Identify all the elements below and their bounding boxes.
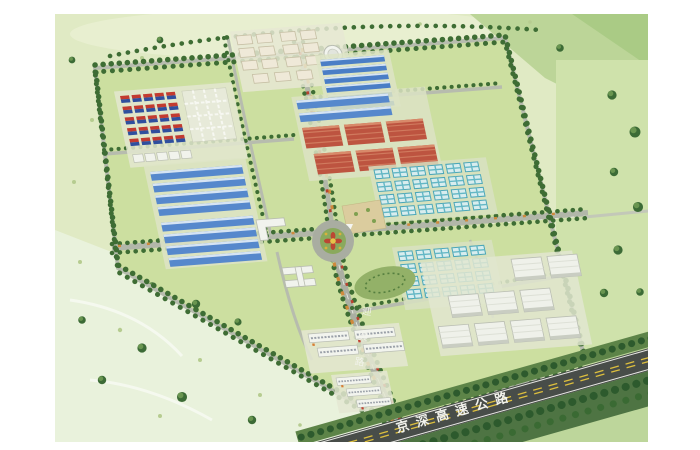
warehouse (511, 257, 546, 281)
container-unit (148, 115, 158, 123)
container-unit (138, 127, 148, 135)
container-unit (129, 138, 139, 146)
tree (78, 316, 86, 324)
container-unit (164, 136, 174, 144)
tree (234, 318, 241, 325)
greenhouse (470, 245, 486, 255)
workshop-unit (283, 44, 300, 54)
greenhouse (436, 203, 452, 213)
greenhouse (379, 194, 395, 204)
greenhouse (410, 166, 426, 176)
container-unit (170, 113, 180, 121)
tree (69, 57, 76, 64)
greenhouse (464, 162, 480, 172)
greenhouse (428, 165, 444, 175)
workshop-unit (157, 152, 169, 161)
container-unit (120, 95, 130, 103)
warehouse (448, 294, 483, 318)
greenhouse (397, 193, 413, 203)
district-container-yard (114, 82, 248, 167)
workshop-unit (256, 33, 273, 43)
tree (556, 44, 564, 52)
container-unit (152, 137, 162, 145)
tree (610, 168, 618, 176)
workshop-unit (259, 46, 276, 56)
workshop-unit (274, 72, 291, 82)
container-unit (166, 92, 176, 100)
warehouse (438, 324, 473, 348)
workshop-unit (133, 154, 145, 163)
workshop-unit (252, 73, 269, 83)
container-unit (161, 125, 171, 133)
greenhouse (434, 248, 450, 258)
tree (248, 416, 256, 424)
greenhouse (469, 187, 485, 197)
tree (98, 376, 106, 384)
greenhouse (406, 289, 422, 299)
greenhouse (452, 247, 468, 257)
district-warehouses (421, 250, 597, 356)
rendering-page: 京深高速公路 迎宾路 (0, 0, 700, 450)
container-unit (134, 105, 144, 113)
greenhouse (382, 207, 398, 217)
greenhouse (392, 168, 408, 178)
warehouse (547, 254, 582, 278)
tree (177, 392, 187, 402)
tree (607, 90, 616, 99)
red-roof-factory (386, 119, 427, 142)
container-unit (141, 137, 151, 145)
workshop-unit (261, 59, 278, 69)
red-roof-factory (302, 125, 343, 148)
red-roof-factory (314, 151, 355, 174)
tree (600, 289, 608, 297)
container-unit (159, 114, 169, 122)
greenhouse (433, 190, 449, 200)
district-greenhouses-east (368, 157, 498, 223)
tree (157, 37, 164, 44)
workshop-unit (296, 70, 313, 80)
masterplan-rendering: 京深高速公路 迎宾路 (0, 0, 700, 450)
tree (137, 343, 146, 352)
greenhouse (454, 201, 470, 211)
greenhouse (449, 176, 465, 186)
greenhouse (418, 204, 434, 214)
container-unit (143, 94, 153, 102)
greenhouse (416, 250, 432, 260)
greenhouse (398, 251, 414, 261)
greenhouse (431, 177, 447, 187)
greenhouse (451, 189, 467, 199)
workshop-unit (241, 60, 258, 70)
greenhouse (374, 169, 390, 179)
workshop-unit (285, 57, 302, 67)
container-unit (157, 103, 167, 111)
workshop-unit (180, 150, 192, 159)
red-roof-factory (344, 122, 385, 145)
roundabout (312, 220, 354, 262)
container-unit (150, 126, 160, 134)
workshop-unit (303, 43, 320, 53)
container-unit (131, 94, 141, 102)
workshop-unit (280, 31, 297, 41)
tree (633, 202, 643, 212)
tree (636, 288, 644, 296)
greenhouse (413, 179, 429, 189)
container-unit (145, 104, 155, 112)
greenhouse (446, 163, 462, 173)
container-unit (154, 93, 164, 101)
warehouse (484, 291, 519, 315)
tree (630, 127, 641, 138)
greenhouse (377, 182, 393, 192)
container-unit (127, 128, 137, 136)
greenhouse (400, 206, 416, 216)
workshop-unit (300, 30, 317, 40)
container-unit (136, 116, 146, 124)
tree (613, 245, 622, 254)
greenhouse (395, 180, 411, 190)
flower-bed (324, 232, 342, 250)
greenhouse (466, 175, 482, 185)
warehouse (520, 288, 555, 312)
workshop-unit (239, 48, 256, 58)
greenhouse (472, 200, 488, 210)
greenhouse (415, 192, 431, 202)
warehouse (546, 316, 581, 340)
workshop-unit (145, 153, 157, 162)
container-unit (125, 117, 135, 125)
container-unit (168, 102, 178, 110)
container-unit (122, 106, 132, 114)
container-unit (175, 135, 185, 143)
container-unit (173, 124, 183, 132)
workshop-unit (236, 35, 253, 45)
warehouse (510, 319, 545, 343)
workshop-unit (168, 151, 180, 160)
warehouse (474, 321, 509, 345)
